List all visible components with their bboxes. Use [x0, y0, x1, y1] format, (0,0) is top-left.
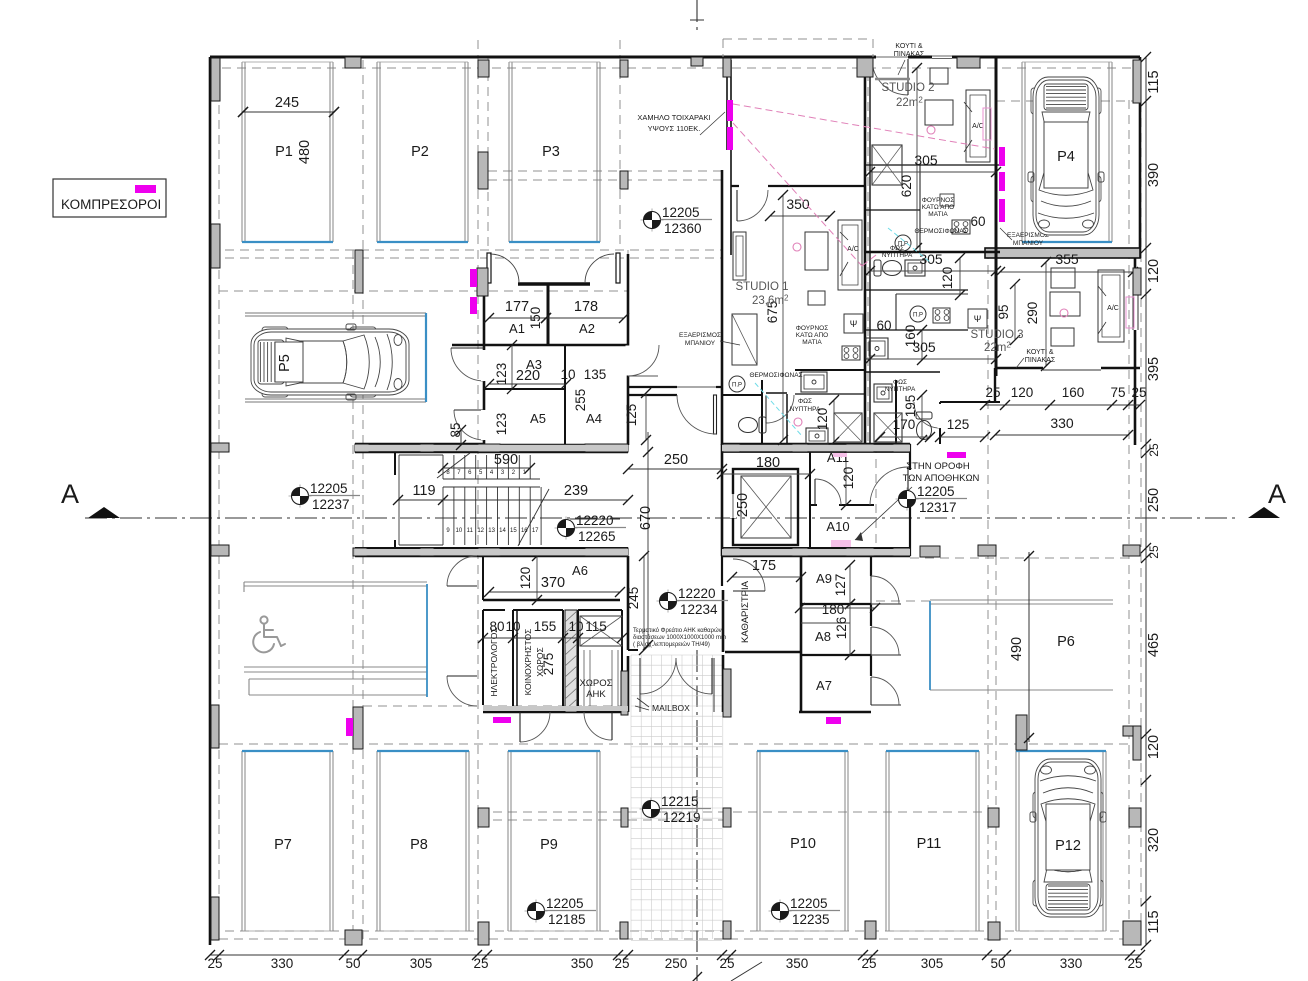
svg-text:590: 590 — [494, 452, 518, 468]
svg-text:12220: 12220 — [678, 586, 716, 601]
svg-text:ΚΟΥΤΙ &: ΚΟΥΤΙ & — [895, 43, 923, 50]
svg-text:ΕΞΑΕΡΙΣΜΟΣ: ΕΞΑΕΡΙΣΜΟΣ — [679, 332, 721, 339]
svg-text:A5: A5 — [530, 411, 546, 426]
svg-text:120: 120 — [1011, 385, 1034, 400]
svg-text:A3: A3 — [526, 357, 542, 372]
svg-text:ΚΑΤΩ ΑΠΟ: ΚΑΤΩ ΑΠΟ — [922, 204, 954, 211]
svg-text:17: 17 — [532, 528, 539, 534]
svg-text:ΜΑΤΙΑ: ΜΑΤΙΑ — [928, 211, 948, 218]
svg-text:120: 120 — [940, 267, 955, 290]
svg-text:119: 119 — [412, 483, 435, 499]
svg-text:A: A — [1268, 479, 1286, 509]
svg-text:12235: 12235 — [792, 912, 830, 927]
svg-text:180: 180 — [822, 602, 845, 617]
svg-text:A9: A9 — [816, 571, 832, 586]
svg-text:P9: P9 — [540, 837, 558, 853]
svg-text:178: 178 — [574, 299, 598, 315]
svg-text:STUDIO 3: STUDIO 3 — [970, 329, 1023, 341]
svg-text:Τερματικό Φρεάτιο ΑΗΚ καθαρών: Τερματικό Φρεάτιο ΑΗΚ καθαρών — [633, 627, 722, 634]
svg-text:12205: 12205 — [662, 205, 700, 220]
svg-text:330: 330 — [271, 956, 294, 971]
svg-text:25: 25 — [614, 956, 629, 971]
svg-text:12234: 12234 — [680, 602, 718, 617]
svg-text:245: 245 — [626, 587, 641, 610]
svg-text:25: 25 — [1131, 385, 1146, 400]
svg-text:ΠΙΝΑΚΑΣ: ΠΙΝΑΚΑΣ — [894, 51, 925, 58]
svg-text:ΥΨΟΥΣ 110ΕΚ.: ΥΨΟΥΣ 110ΕΚ. — [648, 124, 701, 133]
svg-text:ΣΤΗΝ ΟΡΟΦΗ: ΣΤΗΝ ΟΡΟΦΗ — [906, 461, 970, 472]
svg-text:P7: P7 — [274, 837, 292, 853]
svg-text:12185: 12185 — [548, 912, 586, 927]
svg-text:15: 15 — [510, 528, 517, 534]
svg-text:14: 14 — [499, 528, 506, 534]
svg-text:115: 115 — [1146, 70, 1162, 93]
svg-text:25: 25 — [719, 956, 734, 971]
svg-text:120: 120 — [841, 467, 856, 490]
svg-text:25: 25 — [1127, 956, 1142, 971]
svg-text:STUDIO 1: STUDIO 1 — [735, 281, 788, 293]
svg-text:ΦΩΣ: ΦΩΣ — [893, 379, 907, 386]
svg-text:12205: 12205 — [310, 481, 348, 496]
svg-text:175: 175 — [752, 558, 776, 574]
svg-text:διαστάσεων 1000Χ1000Χ1000 mm: διαστάσεων 1000Χ1000Χ1000 mm — [633, 634, 726, 641]
svg-text:25: 25 — [1147, 443, 1161, 457]
svg-text:ΝΥΠΤΗΡΑ: ΝΥΠΤΗΡΑ — [790, 406, 821, 413]
svg-text:Π.Ρ: Π.Ρ — [913, 313, 923, 319]
svg-text:12237: 12237 — [312, 497, 350, 512]
svg-text:330: 330 — [1050, 415, 1074, 431]
svg-text:A/C: A/C — [972, 123, 984, 130]
svg-text:320: 320 — [1146, 828, 1162, 852]
svg-text:12317: 12317 — [919, 500, 957, 515]
svg-text:ΝΥΠΤΗΡΑ: ΝΥΠΤΗΡΑ — [885, 386, 916, 393]
svg-text:ΧΑΜΗΛΟ ΤΟΙΧΑΡΑΚΙ: ΧΑΜΗΛΟ ΤΟΙΧΑΡΑΚΙ — [637, 113, 710, 122]
svg-text:155: 155 — [534, 619, 557, 634]
svg-text:60: 60 — [970, 214, 985, 229]
svg-text:25: 25 — [207, 956, 222, 971]
svg-text:ΦΟΥΡΝΟΣ: ΦΟΥΡΝΟΣ — [922, 197, 954, 204]
svg-text:ΜΑΤΙΑ: ΜΑΤΙΑ — [802, 339, 822, 346]
svg-text:A6: A6 — [572, 563, 588, 578]
svg-text:25: 25 — [1147, 545, 1161, 559]
svg-text:10: 10 — [568, 619, 583, 634]
svg-text:ΚΟΥΤΙ &: ΚΟΥΤΙ & — [1026, 349, 1054, 356]
svg-text:P11: P11 — [917, 836, 942, 852]
svg-text:STUDIO 2: STUDIO 2 — [881, 82, 934, 94]
svg-text:390: 390 — [1146, 163, 1162, 187]
svg-text:350: 350 — [786, 196, 810, 212]
svg-text:250: 250 — [665, 956, 688, 971]
svg-text:120: 120 — [1146, 735, 1162, 759]
svg-text:123: 123 — [494, 363, 509, 386]
svg-text:480: 480 — [297, 140, 313, 164]
svg-text:ΜΠΑΝΙΟΥ: ΜΠΑΝΙΟΥ — [1013, 240, 1044, 247]
svg-text:170: 170 — [893, 417, 916, 432]
svg-text:50: 50 — [990, 956, 1005, 971]
svg-text:( βλ.σχ.λεπτομερειών ΤΗ/49): ( βλ.σχ.λεπτομερειών ΤΗ/49) — [633, 642, 710, 648]
svg-text:P6: P6 — [1057, 634, 1075, 650]
svg-text:465: 465 — [1146, 633, 1162, 657]
svg-text:60: 60 — [876, 318, 891, 333]
svg-text:23,6m2: 23,6m2 — [752, 294, 789, 308]
svg-text:125: 125 — [947, 417, 970, 432]
svg-text:245: 245 — [275, 95, 299, 111]
svg-text:ΗΛΕΚΤΡΟΛΟΓΟΣ: ΗΛΕΚΤΡΟΛΟΓΟΣ — [489, 627, 499, 696]
svg-text:ΠΙΝΑΚΑΣ: ΠΙΝΑΚΑΣ — [1025, 357, 1056, 364]
svg-text:250: 250 — [735, 493, 751, 517]
svg-text:255: 255 — [573, 389, 588, 412]
svg-text:P2: P2 — [411, 144, 429, 160]
svg-text:10: 10 — [505, 619, 520, 634]
svg-text:395: 395 — [1146, 357, 1162, 381]
svg-text:A4: A4 — [586, 411, 602, 426]
svg-text:290: 290 — [1025, 302, 1040, 325]
svg-text:ΧΩΡΟΣ: ΧΩΡΟΣ — [579, 678, 612, 689]
svg-text:305: 305 — [914, 152, 938, 168]
svg-text:330: 330 — [1060, 956, 1083, 971]
svg-text:127: 127 — [833, 574, 848, 597]
svg-text:Ψ: Ψ — [850, 319, 858, 329]
svg-text:11: 11 — [467, 528, 474, 534]
svg-text:305: 305 — [919, 251, 943, 267]
svg-text:ΑΗΚ: ΑΗΚ — [586, 689, 606, 700]
svg-text:A8: A8 — [815, 629, 831, 644]
svg-text:P12: P12 — [1055, 838, 1081, 854]
svg-text:620: 620 — [899, 175, 914, 198]
svg-text:ΜΠΑΝΙΟΥ: ΜΠΑΝΙΟΥ — [685, 340, 716, 347]
svg-text:115: 115 — [585, 619, 607, 634]
svg-text:95: 95 — [996, 304, 1011, 319]
svg-text:P1: P1 — [275, 144, 293, 160]
svg-text:P10: P10 — [790, 836, 816, 852]
svg-text:ΦΩΣ: ΦΩΣ — [798, 398, 812, 405]
svg-text:12: 12 — [477, 528, 484, 534]
svg-text:ΤΩΝ ΑΠΟΘΗΚΩΝ: ΤΩΝ ΑΠΟΘΗΚΩΝ — [903, 473, 980, 484]
svg-text:180: 180 — [756, 455, 780, 471]
svg-text:10: 10 — [456, 528, 463, 534]
svg-text:12205: 12205 — [546, 896, 584, 911]
svg-text:A: A — [61, 479, 79, 509]
svg-text:12360: 12360 — [664, 221, 702, 236]
svg-text:85: 85 — [448, 422, 463, 437]
svg-text:13: 13 — [488, 528, 495, 534]
svg-text:115: 115 — [1146, 910, 1162, 933]
svg-text:160: 160 — [1062, 385, 1085, 400]
svg-text:305: 305 — [912, 339, 936, 355]
svg-text:A2: A2 — [579, 321, 595, 336]
svg-text:250: 250 — [1146, 488, 1162, 512]
svg-text:12215: 12215 — [661, 794, 699, 809]
svg-text:ΘΕΡΜΟΣΙΦΩΝΑΣ: ΘΕΡΜΟΣΙΦΩΝΑΣ — [749, 372, 802, 379]
svg-text:350: 350 — [786, 956, 809, 971]
svg-text:12220: 12220 — [576, 513, 614, 528]
svg-text:305: 305 — [410, 956, 433, 971]
svg-text:195: 195 — [903, 395, 918, 418]
svg-text:12205: 12205 — [790, 896, 828, 911]
svg-text:A/C: A/C — [1107, 305, 1119, 312]
svg-text:125: 125 — [624, 404, 639, 427]
svg-text:A11: A11 — [827, 450, 849, 465]
svg-text:P5: P5 — [277, 354, 293, 372]
svg-text:ΚΟΙΝΟΧΡΗΣΤΟΣ: ΚΟΙΝΟΧΡΗΣΤΟΣ — [523, 629, 533, 696]
svg-text:355: 355 — [1055, 251, 1079, 267]
svg-text:MAILBOX: MAILBOX — [652, 703, 690, 713]
svg-text:ΦΩΣ: ΦΩΣ — [890, 245, 904, 252]
svg-text:10: 10 — [560, 367, 575, 382]
svg-text:12219: 12219 — [663, 810, 701, 825]
svg-text:ΧΩΡΟΣ: ΧΩΡΟΣ — [535, 647, 545, 677]
svg-text:239: 239 — [564, 483, 588, 499]
svg-text:P4: P4 — [1057, 149, 1075, 165]
svg-text:ΝΥΠΤΗΡΑ: ΝΥΠΤΗΡΑ — [882, 252, 913, 259]
svg-text:ΚΑΤΩ ΑΠΟ: ΚΑΤΩ ΑΠΟ — [796, 332, 828, 339]
svg-text:75: 75 — [1110, 385, 1125, 400]
svg-text:25: 25 — [861, 956, 876, 971]
svg-text:350: 350 — [571, 956, 594, 971]
svg-text:A7: A7 — [816, 678, 832, 693]
svg-text:177: 177 — [505, 299, 529, 315]
svg-text:135: 135 — [584, 367, 607, 382]
svg-text:ΚΑΘΑΡΙΣΤΡΙΑ: ΚΑΘΑΡΙΣΤΡΙΑ — [740, 580, 751, 643]
svg-text:Ψ: Ψ — [974, 314, 982, 324]
svg-text:ΦΟΥΡΝΟΣ: ΦΟΥΡΝΟΣ — [796, 325, 828, 332]
svg-text:120: 120 — [518, 567, 533, 590]
svg-text:25: 25 — [473, 956, 488, 971]
svg-text:ΘΕΡΜΟΣΙΦΩΝΑΣ: ΘΕΡΜΟΣΙΦΩΝΑΣ — [914, 228, 967, 235]
svg-text:Π.Ρ: Π.Ρ — [732, 383, 742, 389]
svg-text:123: 123 — [494, 413, 509, 436]
svg-text:A/C: A/C — [847, 246, 859, 253]
svg-text:150: 150 — [528, 307, 543, 330]
svg-text:370: 370 — [541, 575, 565, 591]
svg-text:12265: 12265 — [578, 529, 616, 544]
svg-text:A1: A1 — [509, 321, 525, 336]
svg-text:305: 305 — [921, 956, 944, 971]
svg-text:ΚΟΜΠΡΕΣΟΡΟΙ: ΚΟΜΠΡΕΣΟΡΟΙ — [61, 197, 161, 212]
svg-text:120: 120 — [1146, 259, 1162, 283]
svg-text:25: 25 — [985, 385, 1000, 400]
svg-text:126: 126 — [834, 617, 849, 640]
svg-text:490: 490 — [1009, 637, 1025, 661]
svg-text:670: 670 — [638, 506, 654, 530]
svg-text:P3: P3 — [542, 144, 560, 160]
svg-text:50: 50 — [345, 956, 360, 971]
svg-text:16: 16 — [521, 528, 528, 534]
svg-text:A10: A10 — [826, 519, 849, 534]
svg-text:P8: P8 — [410, 837, 428, 853]
svg-text:250: 250 — [664, 452, 688, 468]
svg-text:12205: 12205 — [917, 484, 955, 499]
